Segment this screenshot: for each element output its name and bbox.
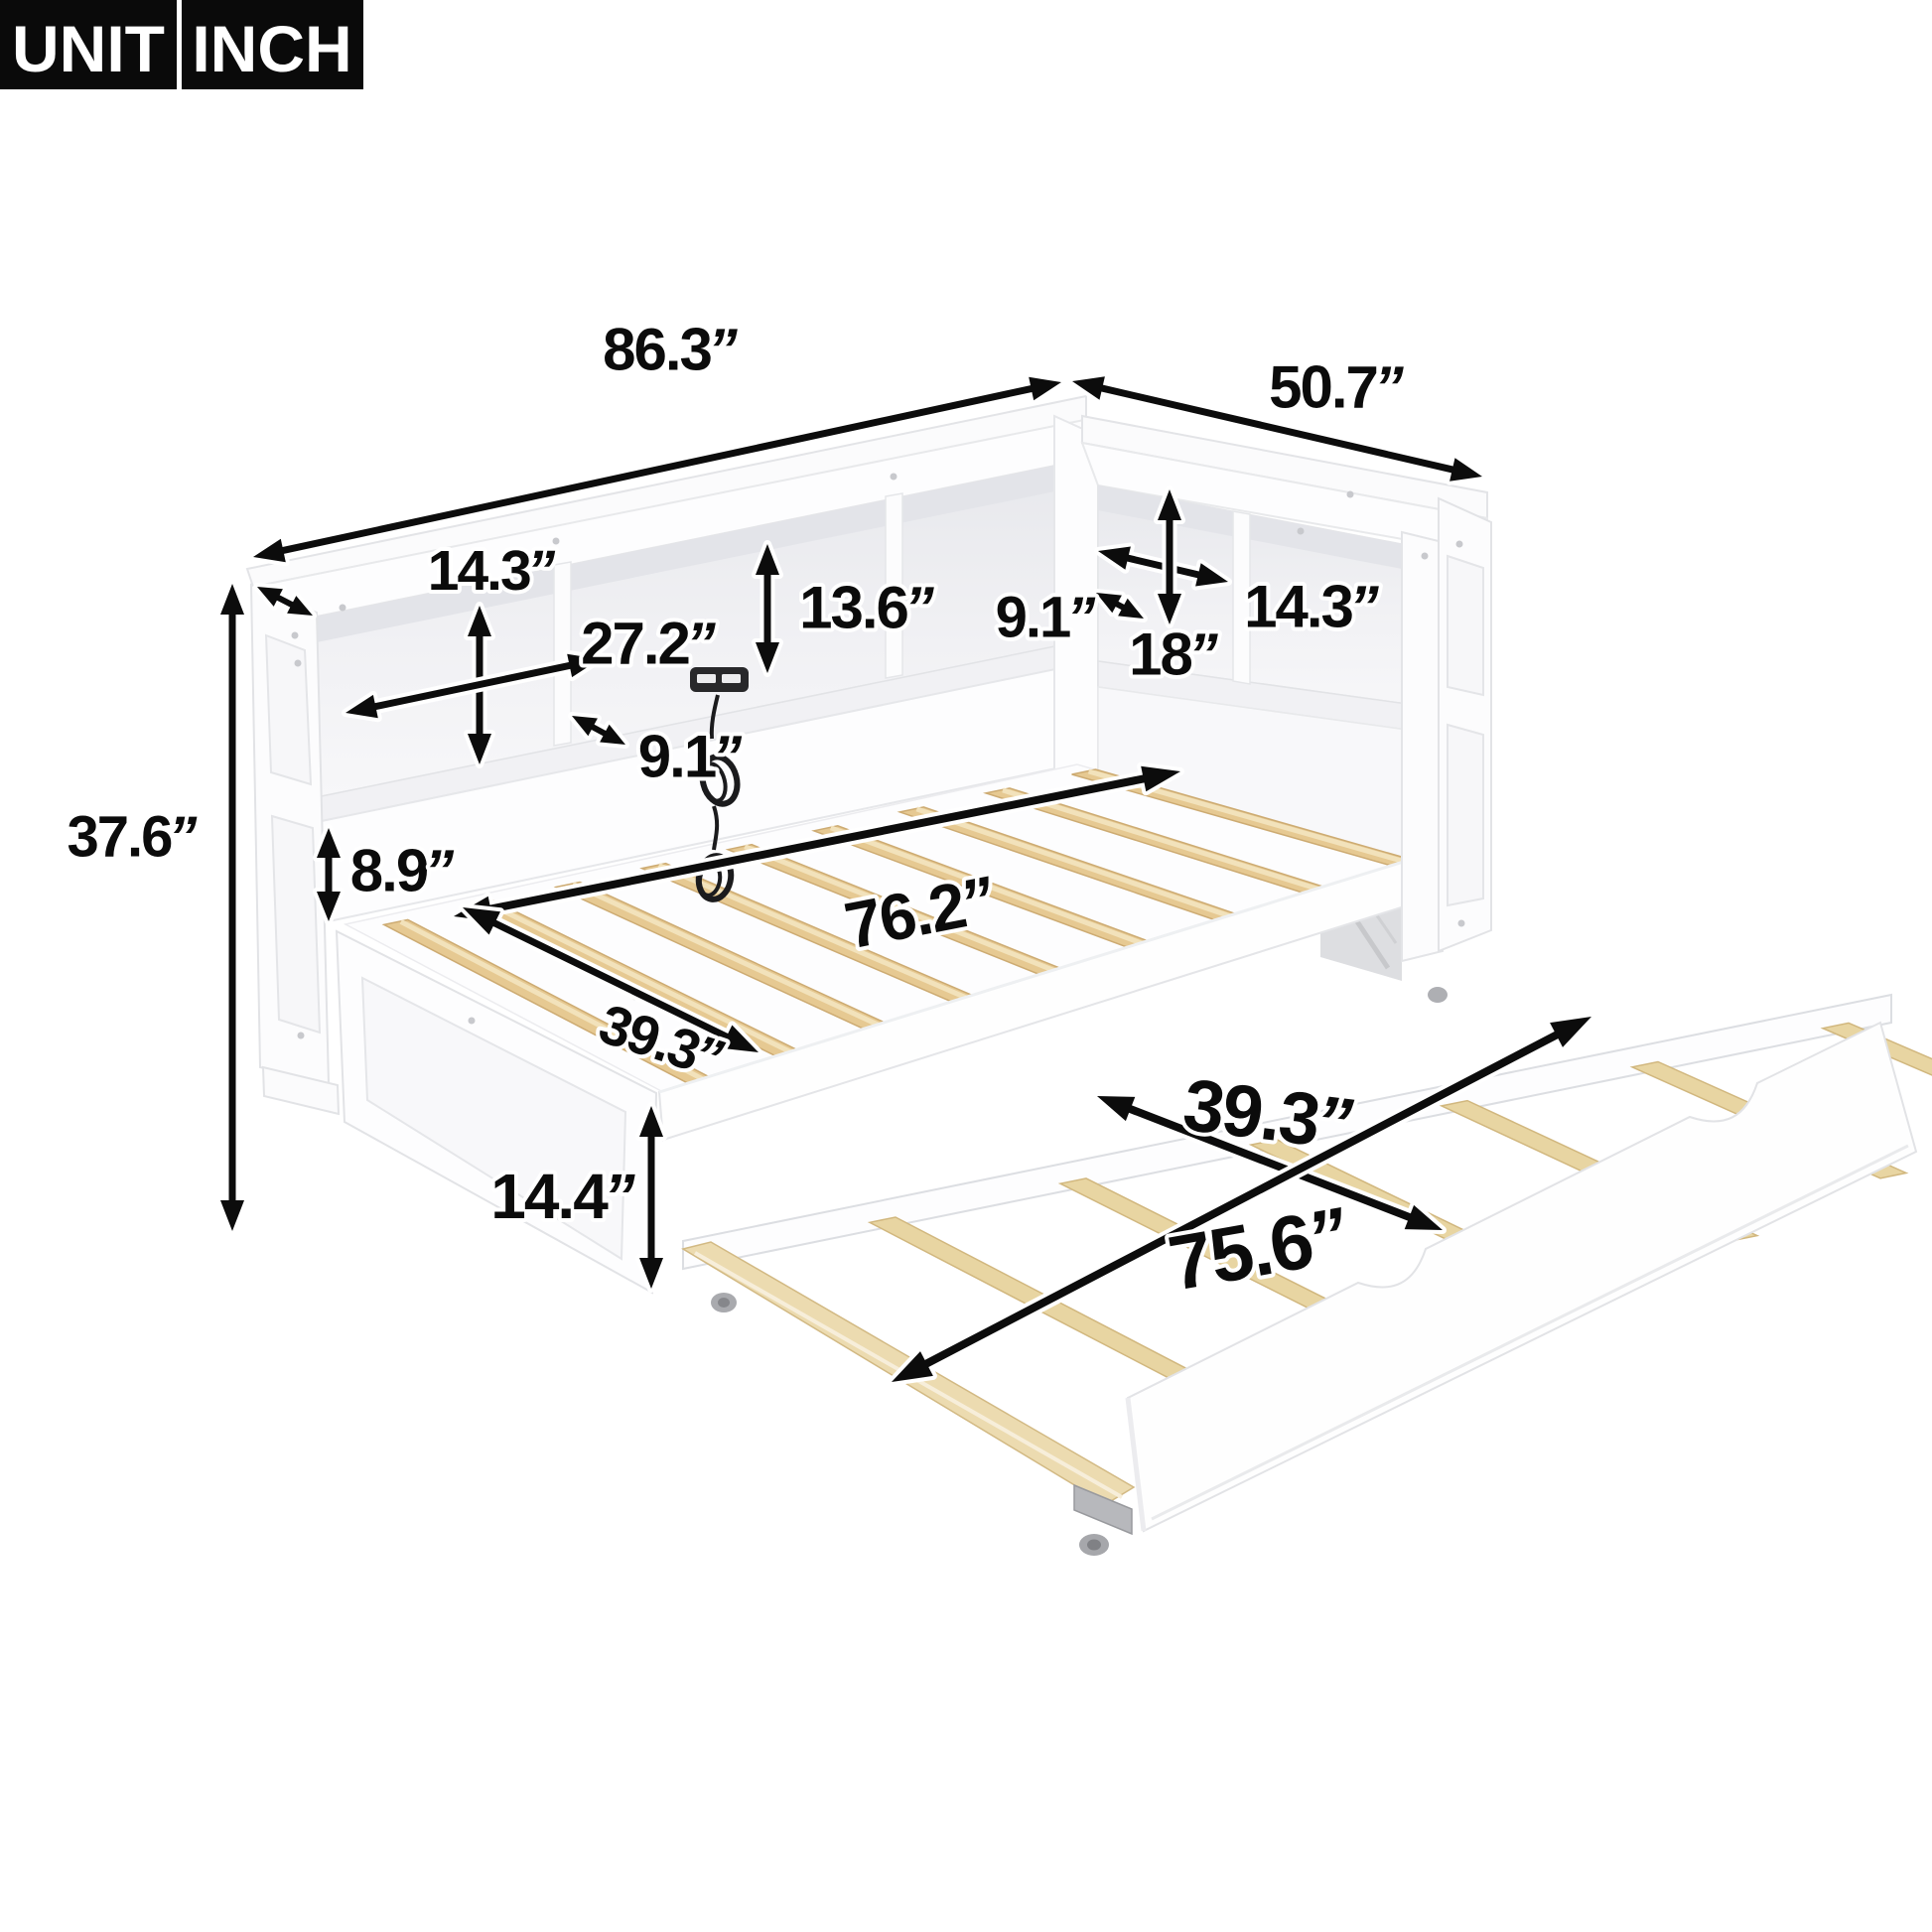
svg-text:18”: 18” — [1129, 621, 1218, 688]
svg-text:86.3”: 86.3” — [603, 317, 738, 383]
svg-text:27.2”: 27.2” — [581, 611, 716, 677]
svg-text:UNIT: UNIT — [12, 12, 165, 85]
svg-text:14.4”: 14.4” — [490, 1161, 635, 1232]
svg-text:8.9”: 8.9” — [350, 838, 454, 904]
svg-text:13.6”: 13.6” — [799, 575, 934, 641]
svg-text:50.7”: 50.7” — [1269, 354, 1404, 421]
svg-text:INCH: INCH — [192, 12, 351, 85]
svg-text:9.1”: 9.1” — [638, 724, 742, 790]
svg-text:37.6”: 37.6” — [68, 805, 198, 870]
svg-text:9.1”: 9.1” — [996, 586, 1096, 650]
svg-text:14.3”: 14.3” — [1244, 574, 1379, 640]
svg-text:14.3”: 14.3” — [428, 539, 556, 603]
